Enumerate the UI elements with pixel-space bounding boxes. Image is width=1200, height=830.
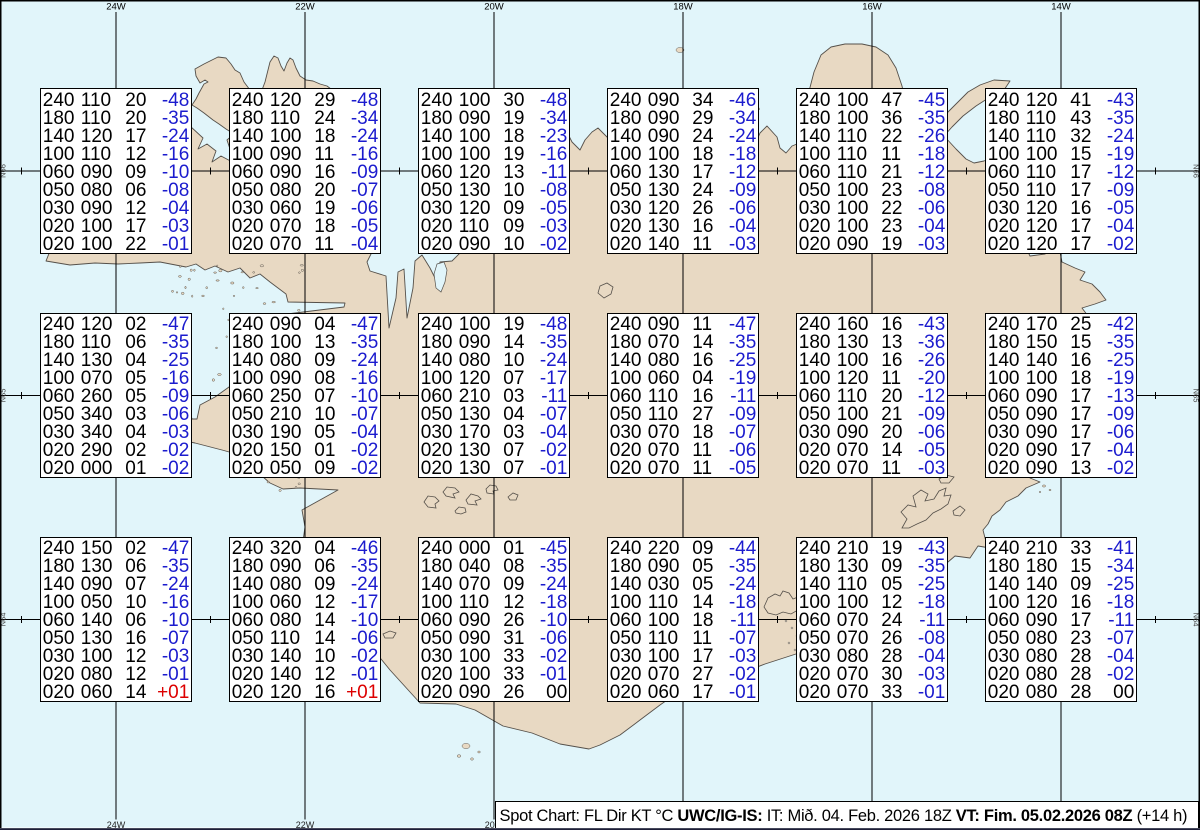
- svg-text:22W: 22W: [295, 2, 315, 13]
- svg-text:16W: 16W: [862, 2, 882, 13]
- svg-text:20W: 20W: [484, 2, 504, 13]
- svg-text:18W: 18W: [673, 2, 693, 13]
- svg-text:24W: 24W: [106, 2, 126, 13]
- svg-text:14W: 14W: [1051, 2, 1071, 13]
